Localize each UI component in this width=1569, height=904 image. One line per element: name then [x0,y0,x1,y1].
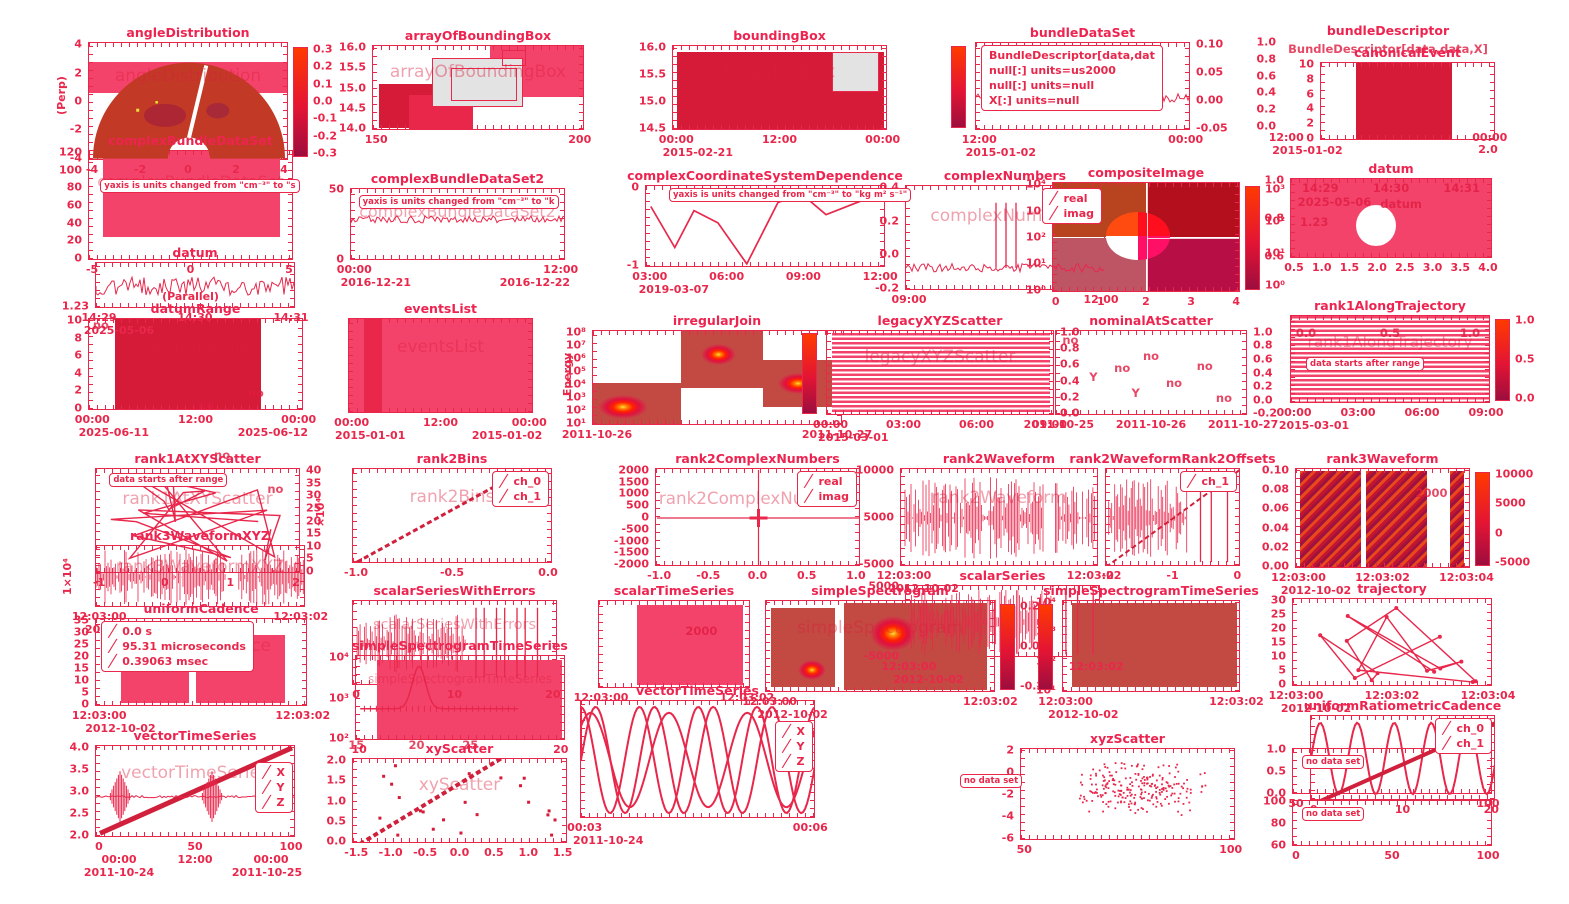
x-tick: 0 [1233,569,1241,582]
plot-area [372,45,584,130]
colorbar [1245,186,1260,289]
plot-graphics [353,759,567,843]
x-axis-ticks: 12:03:0012:03:02 [900,569,1098,582]
x-tick: 200 [568,133,591,146]
y-tick: 10 [1299,57,1314,70]
x-tick: 00:00 [813,418,848,431]
line-sample-icon: ╱ [500,474,509,489]
plot-title: scalarSeriesWithErrors [307,583,602,598]
x-tick: 4 [1232,295,1240,308]
line-sample-icon: ╱ [1443,721,1452,736]
legend-label: Y [797,739,805,754]
colorbar-tick: 10³ [1265,182,1285,195]
y-tick: 25 [1271,607,1286,620]
legend-label: imag [818,489,849,504]
x-tick: -0.5 [440,566,464,579]
x-tick: 12:00 [762,133,797,146]
annotation: data starts after range [109,473,227,487]
x-tick: 12:03:00 [742,695,797,708]
x-tick: 00:00 [1168,133,1203,146]
x-date: 2012-10-02 [1281,702,1351,715]
plot-area [1020,748,1235,840]
line-sample-icon: ╱ [263,765,272,780]
x-axis-ticks: 2011-10-262011-10-27 [592,428,842,441]
plot-panel-boundingBox: boundingBoxboundingBox00:0012:0000:00201… [672,45,887,130]
plot-title: rank1AlongTrajectory [1245,298,1535,313]
x-tick: 0 [187,263,195,276]
y-tick: 0 [81,698,89,711]
x-axis-ticks: 2.0 [1320,143,1495,156]
line-sample-icon: ╱ [263,795,272,810]
y-tick: 6 [74,349,82,362]
annotation: no data set [1302,807,1364,821]
y-tick: 6 [1306,87,1314,100]
line-sample-icon: ╱ [108,654,117,669]
line-sample-icon: ╱ [500,489,509,504]
x-date: 2016-12-21 [341,276,411,289]
y-tick: 10² [1026,231,1046,244]
colorbar-tick: 0.0 [1515,391,1535,404]
legend-label: 0.39063 msec [122,654,208,669]
x-tick: 1.0 [846,569,866,582]
x-axis-ticks: 00:0012:00 [350,263,565,276]
y-tick: 10 [306,539,321,552]
x-tick: 4.0 [1478,261,1498,274]
y-tick: 0.6 [1253,352,1273,365]
y-tick: 25 [74,637,89,650]
y-tick: 15.5 [339,61,366,74]
line-sample-icon: ╱ [805,474,814,489]
x-tick: 2011-10-27 [1208,418,1278,431]
plot-graphics [901,469,1098,566]
y-tick: 20 [1271,621,1286,634]
plot-panel-trajectory: trajectory12:03:0012:03:0212:03:042012-1… [1292,598,1492,686]
legend-item: ╱X [263,765,285,780]
x-tick: -1.0 [379,846,403,859]
y-tick: 2.0 [327,753,347,766]
line-sample-icon: ╱ [783,739,792,754]
colorbar-tick: 10² [1265,214,1285,227]
x-tick: 14:29 [81,311,116,324]
x-axis-ticks: 01234 [1052,295,1240,308]
x-tick: 1.5 [1340,261,1360,274]
x-tick: 2 [232,163,240,176]
colorbar-tick: -0.1 [313,112,337,125]
y-tick: 3.5 [70,762,90,775]
x-tick: 09:00 [1468,406,1503,419]
colorbar [1000,604,1015,691]
y-tick: 0.02 [1262,540,1289,553]
x-axis-ticks: 12:03:0012:03:02 [1062,695,1240,708]
x-tick: 12:03:04 [1439,571,1494,584]
y-tick: -5000 [859,558,894,571]
plot-graphics [827,331,1054,415]
y-tick: 10⁵ [566,364,586,377]
legend-item: ╱0.0 s [109,624,246,639]
y-axis-ticks-right: 4035302520151050 [306,468,376,573]
legend-item: ╱imag [1050,206,1094,221]
x-tick: 03:00 [1340,406,1375,419]
y-tick: 0.6 [1060,358,1080,371]
legend: ╱real╱imag [1042,188,1102,224]
colorbar [1475,472,1490,566]
legend: ╱real╱imag [797,471,857,507]
x-tick: 09:00 [891,293,926,306]
x-axis-ticks: 00:0300:06 [580,821,815,834]
plot-graphics [1296,469,1470,568]
legend-label: ch_1 [1456,736,1484,751]
x-tick: 0.0 [748,569,768,582]
x-tick: 1 [226,576,234,589]
x-tick: 0 [161,576,169,589]
legend-item: null[:] units=us2000 [989,63,1155,78]
y-tick: 100 [1263,794,1286,807]
colorbar-tick: 0.0 [313,95,333,108]
plot-graphics [349,319,533,413]
y-tick: 14.0 [339,122,366,135]
line-sample-icon: ╱ [1050,206,1059,221]
x-axis-ticks: 12:03:0012:03:0212:03:04 [1295,571,1470,584]
x-tick: 150 [365,133,388,146]
y-axis-ticks: 1008060 [1216,800,1286,846]
colorbar-tick: 0.5 [1515,353,1535,366]
x-tick: 100 [1477,849,1500,862]
x-axis-ticks: -1.0-0.50.0 [352,566,552,579]
x-tick: 06:00 [959,418,994,431]
plot-graphics [1321,63,1495,140]
x-axis-dates: 2025-05-06 [95,324,295,337]
y-tick: 10⁴ [566,378,586,391]
x-tick: 0 [184,163,192,176]
x-date: 2015-01-02 [472,429,542,442]
plot-panel-legacyXYZScatter: legacyXYZScatterlegacyXYZScatter00:0003:… [826,330,1054,415]
legend-label: null[:] units=us2000 [989,63,1116,78]
legend-item: null[:] units=null [989,78,1155,93]
legend-item: ╱95.31 microseconds [109,639,246,654]
y-axis-ticks-right: 1.00.80.60.40.20.0 [1060,330,1130,415]
colorbar [951,46,966,129]
x-axis-ticks: -2-10 [1105,569,1240,582]
x-tick: 3 [1187,295,1195,308]
x-tick: 12:03:00 [72,709,127,722]
y-tick: 10⁸ [566,325,586,338]
x-tick: 2011-10-25 [1024,418,1094,431]
plot-panel-xyzScatter: xyzScatter5010020-2-4-6no data set [1020,748,1235,840]
annotation: data starts after range [1306,357,1424,371]
plot-title: rank1AtXYScatter [50,451,345,466]
plot-graphics [1293,599,1492,686]
legend-item: ╱Z [263,795,285,810]
x-date: 2011-10-24 [573,834,643,847]
y-tick: 5 [1278,664,1286,677]
x-tick: 0 [1292,849,1300,862]
plot-title: datum [1245,161,1537,176]
y-tick: 2 [1306,117,1314,130]
x-tick: 100 [1477,797,1500,810]
colorbar [802,333,817,413]
y-tick: 10² [566,404,586,417]
legend-item: ╱Z [783,754,805,769]
y-tick: 0 [306,564,314,577]
x-tick: 2.0 [1478,143,1498,156]
plot-graphics [1021,749,1235,840]
x-tick: 20 [545,688,560,701]
x-tick: 2 [292,576,300,589]
x-tick: 12:03:02 [275,709,330,722]
x-tick: 50 [1288,797,1303,810]
y-axis-ticks: 0-1 [569,185,639,267]
x-axis-ticks: 50100 [1020,843,1235,856]
legend-label: 0.0 s [122,624,152,639]
colorbar-tick: 10¹ [1265,247,1285,260]
y-axis-ticks: 120100806040200 [12,150,82,260]
x-date: 12:00 [177,853,212,866]
x-axis-ticks: 050100 [1292,849,1492,862]
plot-title: rank2Waveform [855,451,1143,466]
plot-title: irregularJoin [547,313,887,328]
line-sample-icon: ╱ [108,624,117,639]
y-tick: 1.0 [327,794,347,807]
x-tick: -1 [93,576,105,589]
x-date: 2012-10-02 [1281,584,1351,597]
legend-item: ╱ch_1 [1188,474,1229,489]
legend-label: X [277,765,285,780]
y-tick: 0.06 [1262,502,1289,515]
y-tick: 10⁰ [1026,283,1046,296]
plot-area [672,45,887,130]
y-axis-ticks: 1.00.50.0 [1216,748,1286,794]
plot-title: angleDistribution [43,25,333,40]
plot-panel-vectorTimeSeries: vectorTimeSeriesvectorTimeSeries05010000… [95,745,295,837]
y-tick: 40 [306,464,321,477]
x-tick: 2.0 [1367,261,1387,274]
x-date: 2015-01-02 [966,146,1036,159]
plot-graphics [673,46,887,130]
x-axis-dates: 2012-10-02 [900,582,1098,595]
legend-label: X[:] units=null [989,93,1079,108]
y-axis-ticks: 1086420 [12,318,82,410]
y-tick: 16.0 [339,40,366,53]
legend-label: real [818,474,842,489]
x-axis-ticks: -1.0-0.50.00.51.0 [655,569,860,582]
y-tick: 16.0 [639,40,666,53]
y-axis-ticks: 420-2-4 [12,42,82,160]
x-axis-ticks: 1020 [355,743,565,756]
x-tick: 0.5 [797,569,817,582]
legend-label: ch_0 [1456,721,1484,736]
x-tick: 2.5 [1395,261,1415,274]
y-tick: 5 [81,686,89,699]
x-tick: -2 [1102,569,1114,582]
x-axis-dates: 2025-06-112025-06-12 [88,426,303,439]
x-date: 2011-10-25 [232,866,302,879]
y-tick: 10 [67,313,82,326]
plot-area [88,42,288,160]
legend-label: imag [1063,206,1094,221]
plot-title: rank2WaveformRank2Offsets [1060,451,1285,466]
colorbar [1038,604,1053,691]
x-tick: 03:00 [632,270,667,283]
x-axis-ticks: 150200 [372,133,584,146]
y-tick: 2.0 [70,829,90,842]
y-tick: 0.2 [880,214,900,227]
plot-title: eventsList [303,301,578,316]
x-axis-dates: 00:0012:0000:00 [95,853,295,866]
legend-label: X [797,724,805,739]
x-axis-dates: 2015-02-21 [672,146,887,159]
x-tick: 12:03:00 [1269,689,1324,702]
y-axis-ticks-right: 1.00.80.60.40.20.0-0.2 [1253,330,1323,415]
x-date: 2015-01-01 [335,429,405,442]
y-axis-ticks: 20-2-4-6 [944,748,1014,840]
x-tick: 12:03:04 [1461,689,1516,702]
x-tick: 12:03:02 [273,610,328,623]
colorbar-tick: 5000 [1495,497,1526,510]
y-tick: 3.0 [70,785,90,798]
y-tick: 15 [1271,636,1286,649]
x-axis-ticks: -1012 [95,576,300,589]
x-axis-dates-2: 2011-10-242011-10-25 [95,866,295,879]
line-sample-icon: ╱ [1050,191,1059,206]
y-tick: 1.23 [62,300,89,313]
x-tick: 1.5 [553,846,573,859]
colorbar-tick: 10⁰ [1265,279,1285,292]
x-tick: -1.0 [647,569,671,582]
y-tick: 8 [1306,72,1314,85]
plot-area [900,468,1098,566]
x-axis-dates: 2012-10-02 [95,722,307,735]
plot-panel-canonicalEvent: canonicalEvent2.01086420 [1320,62,1495,140]
y-tick: 4 [74,38,82,51]
colorbar-tick: -5000 [1495,556,1530,569]
plot-title: legacyXYZScatter [781,313,1099,328]
y-tick: 10⁶ [566,351,586,364]
y-tick: 30 [1271,593,1286,606]
x-tick: 1 [1097,295,1105,308]
y-tick: 0 [1278,678,1286,691]
plot-area [1320,62,1495,140]
x-tick: 5 [285,263,293,276]
x-tick: 00:00 [659,133,694,146]
annotation: no data set [960,774,1022,788]
y-tick: 14.5 [339,101,366,114]
x-tick: 50 [187,840,202,853]
y-tick: 0.2 [1060,390,1080,403]
x-axis-dates: 2015-01-02 [975,146,1190,159]
plot-panel-scalarTimeSeries: scalarTimeSeries12:03:0012:03:022000 [598,600,750,688]
y-tick: -2 [1002,788,1014,801]
legend-item: ╱ch_1 [500,489,541,504]
y-tick: 35 [74,613,89,626]
x-tick: 00:03 [567,821,602,834]
x-date: 2015-03-01 [1279,419,1349,432]
x-axis-ticks: 12:03:0012:03:02 [765,695,995,708]
x-tick: 4 [280,163,288,176]
x-date: 2012-10-02 [757,708,827,721]
y-axis-ticks: 16.015.515.014.5 [596,45,666,130]
x-tick: 14:31 [273,311,308,324]
x-tick: -2 [134,163,146,176]
x-tick: -0.5 [696,569,720,582]
colorbar [1495,319,1510,402]
y-tick: 120 [59,146,82,159]
y-tick: 30 [306,489,321,502]
legend-label: BundleDescriptor[data,dat [989,48,1155,63]
legend-label: 95.31 microseconds [122,639,246,654]
legend-label: Y [277,780,285,795]
colorbar [293,47,308,158]
y-tick: 15.0 [639,95,666,108]
legend-item: ╱X [783,724,805,739]
x-tick: 12:03:00 [1038,695,1093,708]
x-tick: 03:00 [886,418,921,431]
legend-label: null[:] units=null [989,78,1094,93]
y-tick: 35 [306,476,321,489]
y-tick: 25 [306,501,321,514]
plot-panel-datum: datum0.51.01.52.02.53.03.54.01.00.80.614… [1290,178,1492,258]
x-tick: -1.5 [344,846,368,859]
colorbar-tick: 0.2 [313,60,333,73]
y-axis-ticks: 35302520151050 [19,618,89,706]
legend-label: ch_1 [1201,474,1229,489]
y-axis-ticks: 1.23 [19,262,89,308]
x-tick: 00:06 [793,821,828,834]
colorbar-tick: 0.1 [313,77,333,90]
legend: ╱X╱Y╱Z [775,721,813,772]
x-tick: 12:03:02 [1069,660,1124,673]
legend-item: ╱0.39063 msec [109,654,246,669]
y-tick: 20 [74,649,89,662]
legend-item: ╱Y [783,739,805,754]
x-axis-ticks: 00:0012:0000:00 [88,413,303,426]
x-date: 00:00 [101,853,136,866]
x-tick: 50 [1017,843,1032,856]
x-axis-ticks: 12:03:0012:03:02 [95,709,307,722]
y-axis-label: 1×10⁴ [61,558,74,595]
x-date: 2015-02-21 [663,146,733,159]
annotation: no data set [1302,755,1364,769]
y-tick: 1.0 [1257,35,1277,48]
plot-panel-bundleDataSet: bundleDataSetbundleDataSet12:0000:002015… [975,42,1190,130]
plot-panel-empty: 501001.00.50.0no data set [1292,748,1492,794]
x-tick: 10 [352,743,367,756]
x-tick: 12:03:00 [1271,571,1326,584]
x-tick: -1 [1166,569,1178,582]
line-sample-icon: ╱ [783,724,792,739]
y-tick: 4 [1306,102,1314,115]
x-date: 2025-05-06 [84,324,154,337]
y-tick: 10³ [329,691,349,704]
inner-label: no [214,448,230,462]
line-sample-icon: ╱ [1188,474,1197,489]
x-tick: 00:00 [865,133,900,146]
legend-item: ╱ch_0 [500,474,541,489]
x-tick: 2 [1142,295,1150,308]
colorbar-tick: 0 [1495,526,1503,539]
legend-label: ch_0 [513,474,541,489]
x-tick: -0.5 [413,846,437,859]
y-tick: 1.5 [327,774,347,787]
y-tick: -2 [70,123,82,136]
legend: ╱0.0 s╱95.31 microseconds╱0.39063 msec [101,621,254,672]
legend-label: Z [797,754,805,769]
plot-title: complexNumbers [860,168,1150,183]
plot-area [1295,468,1470,568]
x-tick: 0.5 [484,846,504,859]
x-tick: 12:03:02 [1209,695,1264,708]
annotation: yaxis is units changed from "cm⁻³" to "k [359,195,559,209]
x-axis-dates: 2015-03-01 [1290,419,1490,432]
